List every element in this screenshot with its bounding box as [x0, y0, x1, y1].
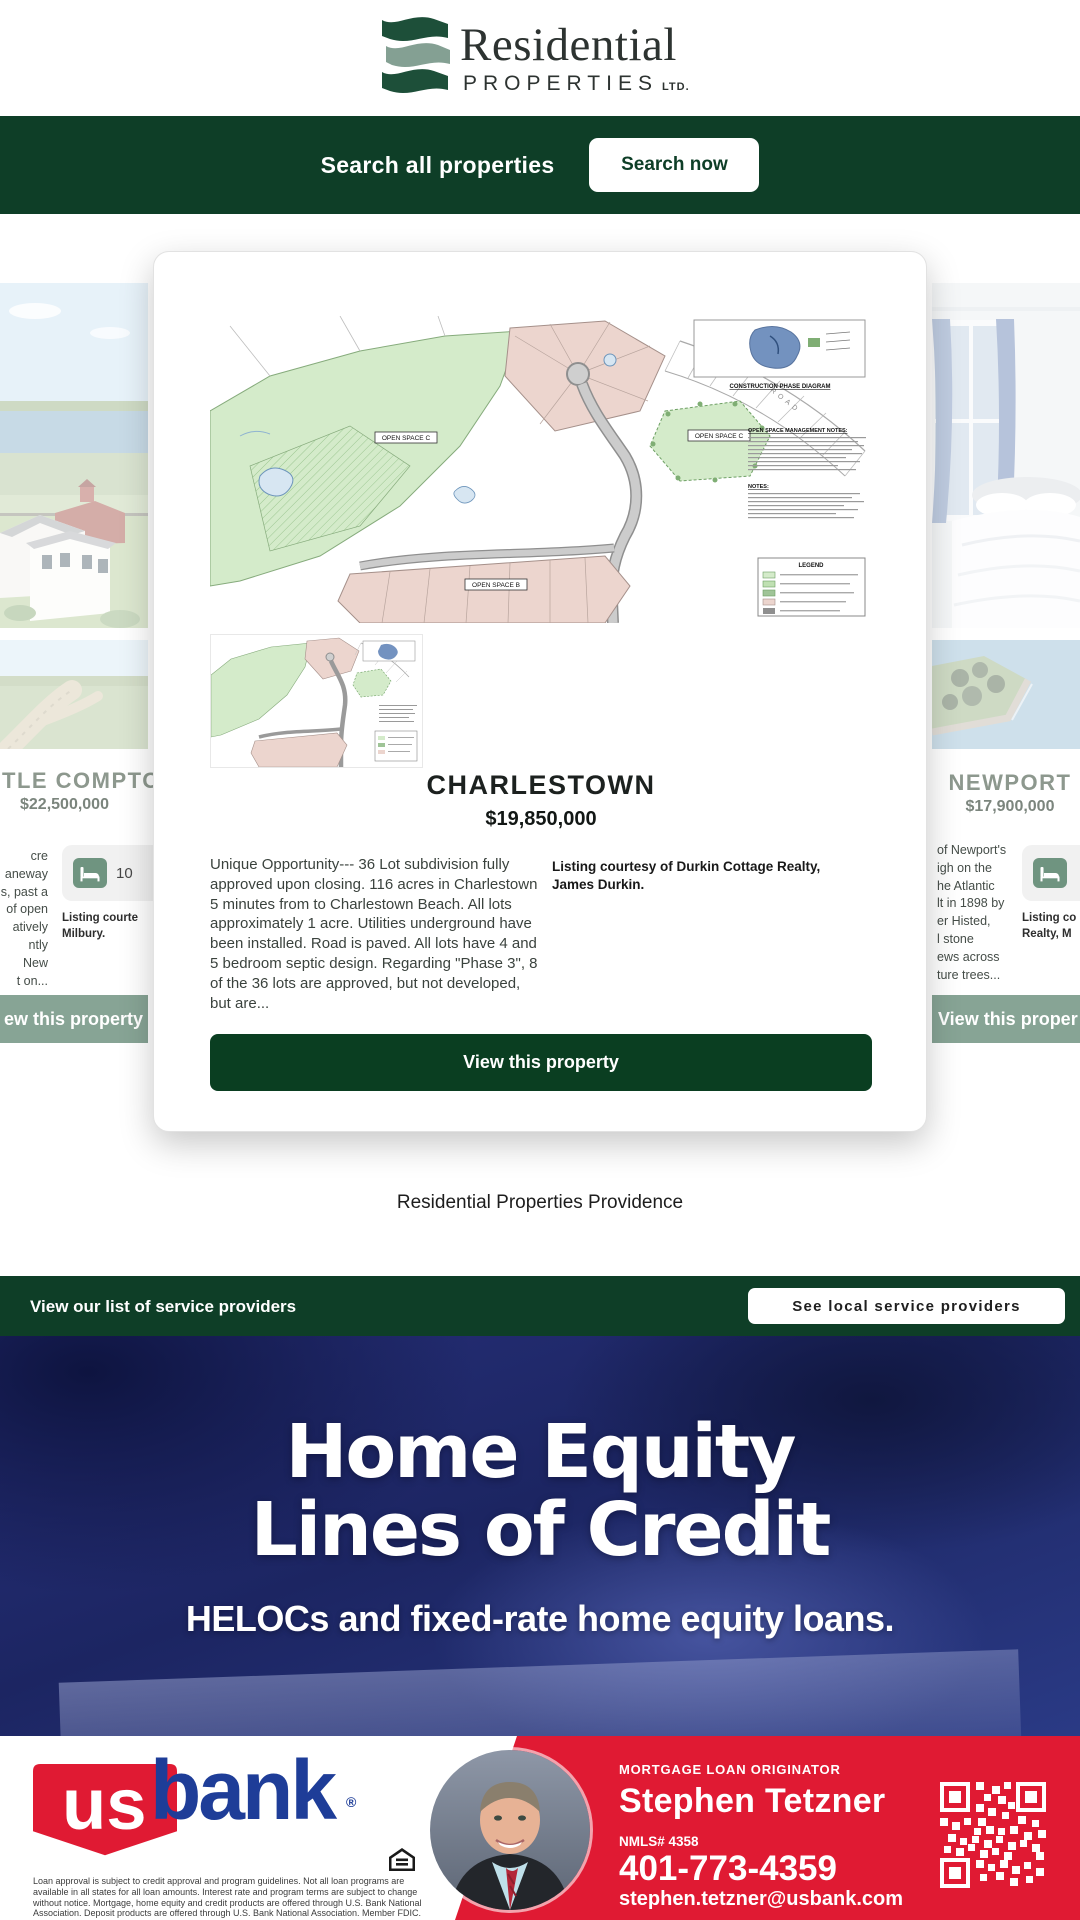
originator-name: Stephen Tetzner [619, 1782, 885, 1821]
left-card-description: cre aneway s, past a of open atively ntl… [0, 848, 48, 990]
search-now-button[interactable]: Search now [589, 138, 759, 192]
property-modal: ROAD OPEN SPACE C OPEN SPA [153, 251, 927, 1132]
modal-property-title: CHARLESTOWN [154, 770, 928, 801]
site-header: Residential PROPERTIES LTD. [0, 0, 1080, 116]
modal-property-description: Unique Opportunity--- 36 Lot subdivision… [210, 855, 544, 1013]
photo-overlay [0, 283, 148, 628]
originator-phone[interactable]: 401-773-4359 [619, 1849, 837, 1889]
service-providers-bar: View our list of service providers See l… [0, 1276, 1080, 1336]
banner-headline-line2: Lines of Credit [0, 1492, 1080, 1568]
left-card-thumb-photo[interactable] [0, 640, 148, 749]
left-card-view-button[interactable]: ew this property [0, 995, 148, 1043]
right-card-title: NEWPORT [930, 770, 1080, 796]
left-card-title: TLE COMPTON [2, 768, 178, 794]
svg-text:OPEN SPACE C: OPEN SPACE C [382, 435, 431, 442]
svg-text:OPEN SPACE C: OPEN SPACE C [695, 433, 744, 440]
usbank-footer: us bank ® Loan approval is subject to cr… [0, 1736, 1080, 1920]
svg-text:us: us [62, 1764, 147, 1845]
right-card-view-button[interactable]: View this proper [932, 995, 1080, 1043]
site-plan-thumbnail[interactable] [210, 634, 423, 768]
photo-overlay [0, 640, 148, 749]
logo-wordmark: Residential [460, 18, 677, 72]
svg-text:OPEN SPACE B: OPEN SPACE B [472, 582, 520, 589]
site-plan-image[interactable]: ROAD OPEN SPACE C OPEN SPA [210, 316, 872, 623]
svg-text:CONSTRUCTION PHASE DIAGRAM: CONSTRUCTION PHASE DIAGRAM [729, 384, 830, 390]
banner-subtitle: HELOCs and fixed-rate home equity loans. [0, 1598, 1080, 1640]
bed-icon [1033, 858, 1067, 888]
logo-subtitle: PROPERTIES [463, 72, 658, 96]
page: Residential PROPERTIES LTD. Search all p… [0, 0, 1080, 1920]
service-providers-button[interactable]: See local service providers [748, 1288, 1065, 1324]
svg-text:LEGEND: LEGEND [798, 563, 824, 569]
right-card-photo[interactable] [932, 283, 1080, 628]
search-banner-label: Search all properties [321, 152, 555, 179]
view-property-button[interactable]: View this property [210, 1034, 872, 1091]
right-card-listing-courtesy: Listing co Realty, M [1022, 910, 1080, 942]
search-banner: Search all properties Search now [0, 116, 1080, 214]
originator-email[interactable]: stephen.tetzner@usbank.com [619, 1888, 903, 1911]
left-card-photo[interactable] [0, 283, 148, 628]
right-card-thumb-photo[interactable] [932, 640, 1080, 749]
equal-housing-lender-icon [388, 1848, 416, 1877]
originator-role: MORTGAGE LOAN ORIGINATOR [619, 1762, 841, 1777]
svg-text:NOTES:: NOTES: [748, 484, 769, 490]
right-card-view-button-label: View this proper [938, 1009, 1078, 1030]
logo-ltd: LTD. [662, 81, 690, 93]
registered-mark: ® [346, 1794, 356, 1810]
usbank-logo-bank: bank [150, 1742, 334, 1839]
left-card-view-button-label: ew this property [4, 1009, 143, 1030]
banner-headline-line1: Home Equity [0, 1414, 1080, 1490]
svg-text:OPEN SPACE MANAGEMENT NOTES:: OPEN SPACE MANAGEMENT NOTES: [748, 428, 848, 434]
office-caption: Residential Properties Providence [0, 1192, 1080, 1214]
bed-icon [73, 858, 107, 888]
loan-originator-photo [430, 1750, 590, 1910]
originator-nmls: NMLS# 4358 [619, 1834, 699, 1849]
right-card-price: $17,900,000 [930, 798, 1080, 816]
modal-property-price: $19,850,000 [154, 808, 928, 831]
legend: LEGEND [758, 558, 865, 616]
right-card-features-badge [1022, 845, 1080, 901]
photo-overlay [932, 283, 1080, 628]
residential-properties-flag-icon [382, 16, 450, 103]
qr-code [940, 1782, 1046, 1893]
home-equity-banner[interactable]: Home Equity Lines of Credit HELOCs and f… [0, 1336, 1080, 1736]
footer-disclaimer: Loan approval is subject to credit appro… [33, 1876, 425, 1919]
bed-count: 10 [116, 865, 133, 882]
modal-listing-courtesy: Listing courtesy of Durkin Cottage Realt… [552, 858, 852, 894]
photo-overlay [932, 640, 1080, 749]
service-providers-label: View our list of service providers [30, 1297, 296, 1317]
left-card-price: $22,500,000 [20, 796, 109, 814]
